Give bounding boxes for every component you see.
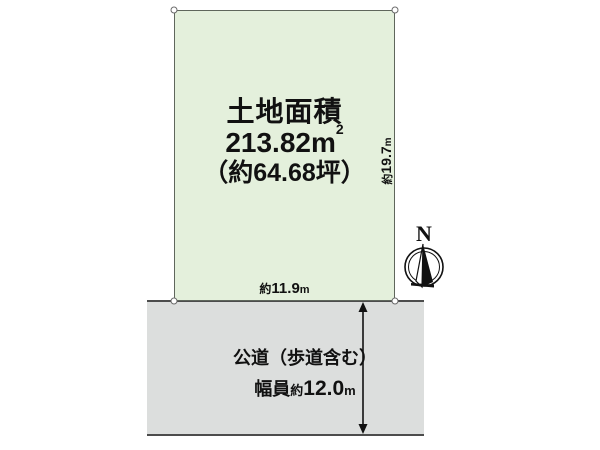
depth-prefix: 約 [382,174,394,185]
frontage-unit: m [300,284,310,296]
area-unit: m [311,127,336,158]
land-plot-diagram: 土地面積 213.82m2 （約64.68坪） 約11.9m 約19.7m 公道… [0,0,600,450]
depth-dimension-label: 約19.7m [378,137,396,184]
plot-label: 土地面積 213.82m2 （約64.68坪） [174,97,395,186]
road-width-unit: m [344,383,356,398]
north-compass: N [398,220,450,294]
compass-needle-black [422,244,433,287]
depth-value: 19.7 [378,146,394,173]
compass-needle-white [416,244,423,287]
north-label: N [416,221,432,246]
road-width-prefix: 約 [290,383,303,398]
road-width-arrow [355,302,371,434]
corner-marker-top-right [392,7,399,14]
corner-marker-bottom-right [392,298,399,305]
area-exponent: 2 [336,121,344,137]
corner-marker-top-left [171,7,178,14]
road-width-kanji: 幅員 [254,379,290,399]
road-width-value: 12.0 [303,377,344,400]
plot-area-value: 213.82m2 [174,128,395,157]
corner-marker-bottom-left [171,298,178,305]
plot-area-tsubo: （約64.68坪） [174,160,395,186]
area-number: 213.82 [225,127,311,158]
frontage-dimension-label: 約11.9m [174,280,395,298]
plot-title: 土地面積 [174,97,395,126]
frontage-prefix: 約 [259,282,271,296]
frontage-value: 11.9 [271,280,299,297]
depth-unit: m [383,137,394,146]
